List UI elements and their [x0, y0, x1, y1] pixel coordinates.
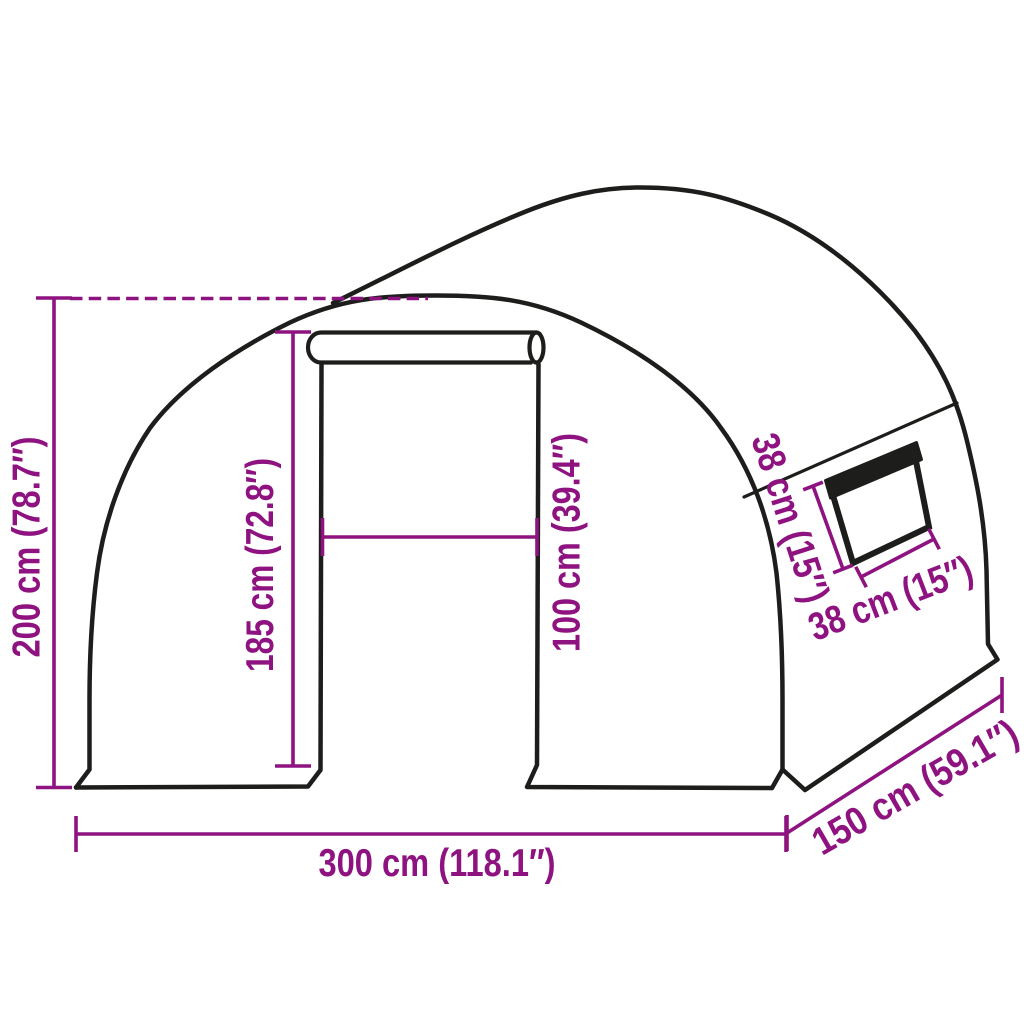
svg-text:150 cm (59.1″): 150 cm (59.1″) [805, 712, 1024, 864]
svg-text:300 cm (118.1″): 300 cm (118.1″) [319, 842, 556, 885]
svg-text:200 cm (78.7″): 200 cm (78.7″) [6, 437, 49, 658]
svg-text:185 cm (72.8″): 185 cm (72.8″) [239, 458, 282, 672]
svg-text:100 cm (39.4″): 100 cm (39.4″) [545, 433, 588, 652]
